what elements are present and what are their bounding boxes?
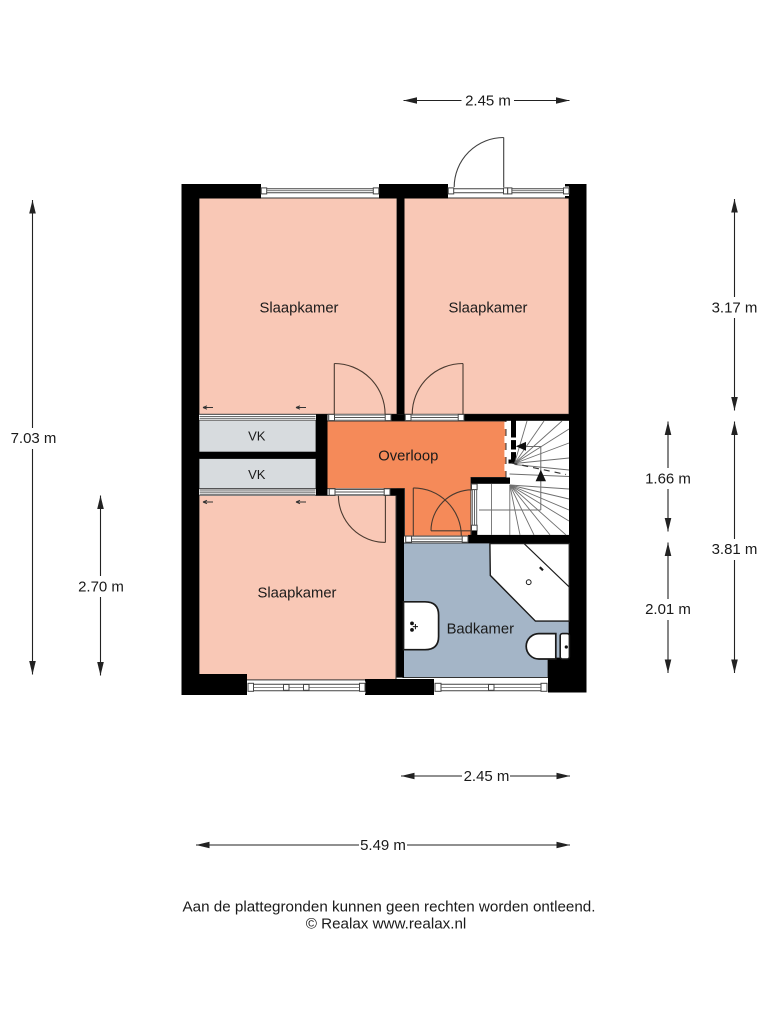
svg-text:Overloop: Overloop [378,448,438,464]
svg-text:3.81 m: 3.81 m [712,541,758,558]
svg-text:2.45 m: 2.45 m [465,93,511,110]
svg-text:Slaapkamer: Slaapkamer [260,301,339,317]
svg-text:7.03 m: 7.03 m [11,430,57,447]
svg-text:2.45 m: 2.45 m [464,768,510,785]
svg-text:2.70 m: 2.70 m [78,579,124,596]
svg-text:Badkamer: Badkamer [447,622,515,638]
svg-text:5.49 m: 5.49 m [360,837,406,854]
svg-text:Slaapkamer: Slaapkamer [258,586,337,602]
svg-text:3.17 m: 3.17 m [712,300,758,317]
svg-text:VK: VK [248,428,266,443]
svg-text:VK: VK [248,467,266,482]
svg-text:Aan de plattegronden kunnen ge: Aan de plattegronden kunnen geen rechten… [183,899,596,916]
svg-text:Slaapkamer: Slaapkamer [449,301,528,317]
svg-text:2.01 m: 2.01 m [645,601,691,618]
svg-text:© Realax www.realax.nl: © Realax www.realax.nl [306,916,467,933]
svg-text:1.66 m: 1.66 m [645,471,691,488]
